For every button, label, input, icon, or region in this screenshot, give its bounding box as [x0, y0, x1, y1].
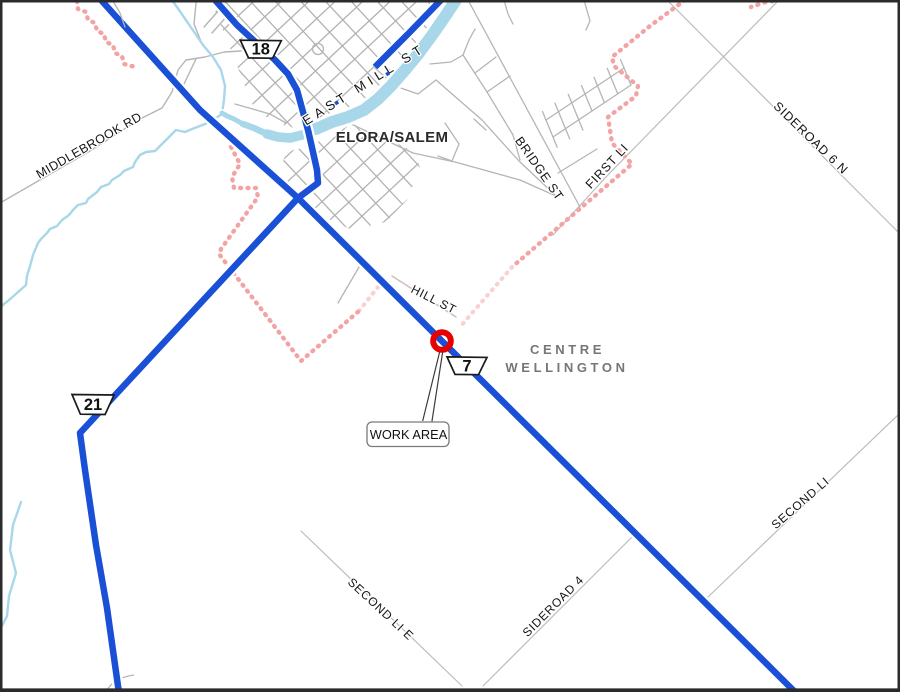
- svg-text:WORK AREA: WORK AREA: [370, 427, 448, 442]
- svg-text:WELLINGTON: WELLINGTON: [505, 360, 628, 375]
- svg-text:18: 18: [252, 41, 270, 59]
- svg-text:CENTRE: CENTRE: [530, 342, 605, 357]
- svg-text:MIDDLEBROOK RD: MIDDLEBROOK RD: [34, 110, 145, 182]
- svg-text:SECOND LI E: SECOND LI E: [345, 575, 417, 643]
- svg-text:7: 7: [462, 357, 471, 375]
- svg-text:ELORA/SALEM: ELORA/SALEM: [336, 129, 448, 146]
- svg-text:21: 21: [84, 396, 102, 414]
- svg-text:SIDEROAD 4: SIDEROAD 4: [520, 573, 587, 640]
- svg-text:BRIDGE ST: BRIDGE ST: [512, 134, 566, 203]
- svg-text:SECOND LI: SECOND LI: [769, 474, 832, 532]
- svg-text:SIDEROAD 6 N: SIDEROAD 6 N: [771, 99, 851, 177]
